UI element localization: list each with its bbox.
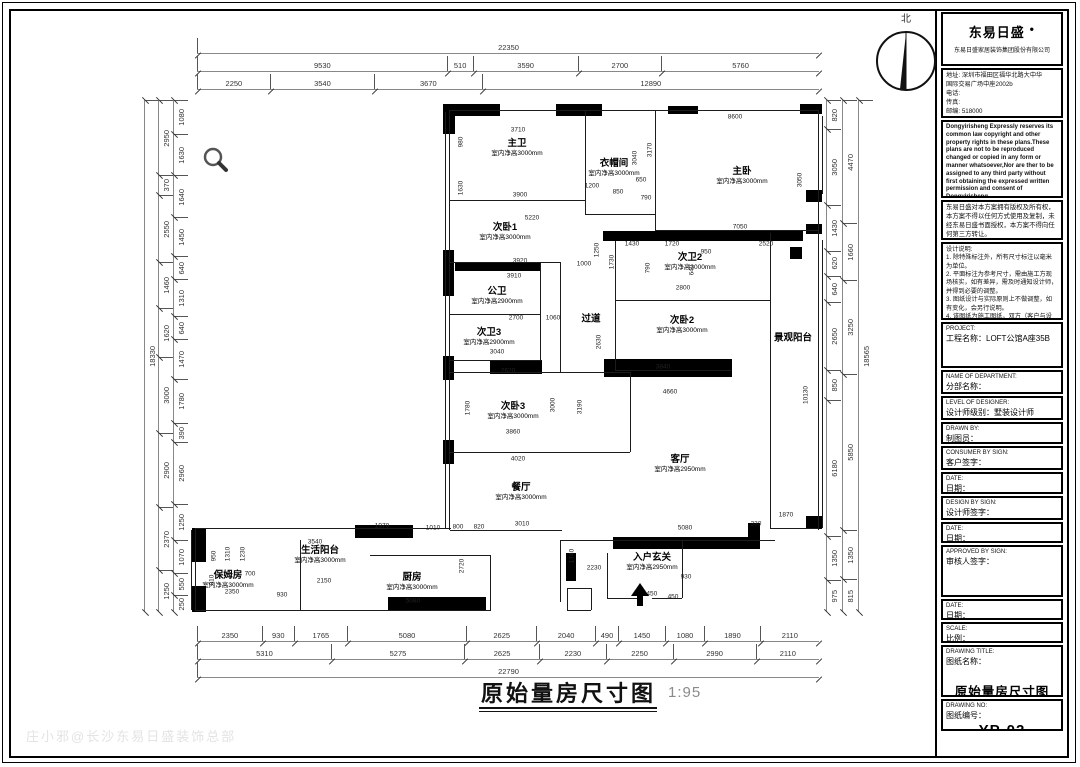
drawing-scale: 1:95 <box>668 684 701 701</box>
dimension-label: 810 <box>209 575 216 586</box>
plan-line <box>540 262 541 361</box>
dimension-segment: 1780 <box>174 379 188 423</box>
dimension-segment: 2110 <box>760 626 819 641</box>
dimension-segment: 1350 <box>843 530 857 580</box>
dimension-chain: 44701660325058501350815 <box>842 100 857 612</box>
row-label-en: DESIGN BY SIGN: <box>946 500 1058 506</box>
drawing-title-in-block: 原始量房尺寸图 <box>946 681 1058 697</box>
dimension-segment: 390 <box>174 423 188 442</box>
dimension-value: 930 <box>272 631 285 640</box>
room-name: 主卧 <box>716 167 767 178</box>
dimension-value: 2110 <box>782 631 798 640</box>
plan-line <box>770 233 771 529</box>
company-name: 东易日盛家居装饰集团股份有限公司 <box>946 45 1058 54</box>
room-name: 公卫 <box>471 287 522 298</box>
plan-line <box>195 528 196 611</box>
dimension-label: 5080 <box>678 525 692 532</box>
dimension-label: 2150 <box>317 578 331 585</box>
dimension-value: 18330 <box>148 346 157 367</box>
dimension-segment: 1450 <box>618 626 665 641</box>
dimension-label: 7050 <box>733 224 747 231</box>
dimension-label: 3540 <box>308 539 322 546</box>
dimension-value: 2625 <box>494 649 511 658</box>
plan-line <box>630 372 631 452</box>
room-label: 次卫3室内净高2900mm <box>463 328 514 346</box>
dimension-label: 980 <box>458 137 465 148</box>
room-name: 生活阳台 <box>294 546 345 557</box>
wall-segment <box>603 231 803 241</box>
dimension-value: 2040 <box>558 631 575 640</box>
dimension-segment: 12890 <box>482 74 819 89</box>
room-name: 次卧1 <box>479 223 530 234</box>
dimension-value: 820 <box>830 109 839 122</box>
row-label-cn: 制图员： <box>946 433 1058 444</box>
magnifier-icon[interactable] <box>201 146 231 181</box>
title-block: 东易日盛 ● 东易日盛家居装饰集团股份有限公司 地址: 深圳市福田区福华北路大中… <box>941 12 1063 731</box>
plan-line <box>770 528 819 529</box>
dimension-label: 1720 <box>665 241 679 248</box>
plan-line <box>450 360 540 361</box>
dimension-value: 2230 <box>565 649 582 658</box>
dimension-segment: 620 <box>827 251 841 276</box>
room-label: 景观阳台 <box>774 334 812 345</box>
dimension-label: 1630 <box>458 181 465 195</box>
room-label: 次卧3室内净高3000mm <box>487 402 538 420</box>
plan-line <box>450 110 818 111</box>
dimension-label: 3910 <box>507 273 521 280</box>
dimension-segment: 2230 <box>539 644 605 659</box>
dimension-label: 5080 <box>406 598 420 605</box>
plan-line <box>450 314 540 315</box>
address-line: 传真: <box>946 99 1058 108</box>
dimension-segment: 1250 <box>174 504 188 540</box>
drawing-title: 原始量房尺寸图 <box>481 676 656 708</box>
dimension-segment: 1080 <box>665 626 704 641</box>
dimension-value: 18565 <box>862 346 871 367</box>
row-label-cn: 图纸名称： <box>946 656 1058 667</box>
address-line: 地址: 深圳市福田区福华北路大中华 <box>946 72 1058 81</box>
dimension-segment: 1890 <box>704 626 760 641</box>
dimension-segment: 1620 <box>159 308 173 357</box>
titleblock-row: DATE:日期： <box>941 599 1063 620</box>
room-ceiling-height: 室内净高2950mm <box>654 466 705 473</box>
dimension-value: 5310 <box>256 649 273 658</box>
dimension-label: 700 <box>245 571 256 578</box>
plan-line <box>450 200 585 201</box>
dimension-value: 370 <box>162 179 171 192</box>
dimension-label: 5220 <box>525 215 539 222</box>
room-ceiling-height: 室内净高3000mm <box>495 494 546 501</box>
dimension-label: 1250 <box>594 243 601 257</box>
dimension-label: 3710 <box>511 127 525 134</box>
plan-line <box>585 214 655 215</box>
dimension-value: 1640 <box>177 189 186 206</box>
dimension-segment: 2650 <box>827 302 841 371</box>
dimension-segment: 3050 <box>827 129 841 205</box>
design-note: 3. 图纸设计与实际原则上不做调整，如有变化，会另行说明。 <box>946 296 1058 313</box>
address-line: http：//www.dyrs.com.cn <box>946 117 1058 118</box>
dimension-label: 1310 <box>225 547 232 561</box>
dimension-value: 12890 <box>640 79 661 88</box>
dimension-segment: 1430 <box>827 205 841 250</box>
dimension-value: 6180 <box>830 460 839 477</box>
title-underline <box>479 707 657 709</box>
dimension-segment: 490 <box>595 626 618 641</box>
dimension-label: 850 <box>613 189 624 196</box>
room-ceiling-height: 室内净高3000mm <box>656 327 707 334</box>
room-label: 主卧室内净高3000mm <box>716 167 767 185</box>
dimension-label: 950 <box>211 551 218 562</box>
dimension-segment: 1640 <box>174 175 188 217</box>
dimension-value: 3000 <box>162 387 171 404</box>
wall-segment <box>806 224 822 234</box>
dimension-label: 1230 <box>240 547 247 561</box>
dimension-segment: 1070 <box>174 540 188 574</box>
dimension-chain: 9530510359027005760 <box>197 56 819 72</box>
floor-plan: 主卫室内净高3000mm衣帽间室内净高3000mm主卧室内净高3000mm次卧1… <box>0 0 940 767</box>
watermark: 庄小邪@长沙东易日盛装饰总部 <box>26 726 236 745</box>
dimension-chain: 18565 <box>858 100 873 612</box>
dimension-label: 2620 <box>501 368 515 375</box>
dimension-value: 1080 <box>177 109 186 126</box>
dimension-segment: 3670 <box>374 74 482 89</box>
dimension-segment: 850 <box>827 370 841 400</box>
row-label-en: DATE: <box>946 526 1058 532</box>
title-underline-2 <box>479 711 657 712</box>
dimension-label: 790 <box>645 263 652 274</box>
dimension-value: 5080 <box>399 631 416 640</box>
room-label: 餐厅室内净高3000mm <box>495 483 546 501</box>
entry-direction-arrow <box>631 583 649 606</box>
row-label-en: DRAWING TITLE: <box>946 649 1058 655</box>
dimension-value: 1620 <box>162 325 171 342</box>
row-label-cn: 设计师级别：墅装设计师 <box>946 407 1058 418</box>
titleblock-row: SCALE:比例： <box>941 622 1063 643</box>
dimension-label: 2700 <box>509 315 523 322</box>
dimension-segment: 370 <box>159 175 173 196</box>
dimension-segment: 2950 <box>159 100 173 175</box>
plan-line <box>567 588 568 610</box>
dimension-label: 1870 <box>779 512 793 519</box>
dimension-label: 640 <box>689 265 696 276</box>
dimension-value: 1070 <box>177 549 186 566</box>
dimension-value: 2110 <box>780 649 796 658</box>
plan-line <box>567 610 591 611</box>
dimension-value: 1460 <box>162 277 171 294</box>
row-label-cn: 图纸编号： <box>946 710 1058 721</box>
dimension-label: 1060 <box>546 315 560 322</box>
room-ceiling-height: 室内净高3000mm <box>294 557 345 564</box>
plan-line <box>822 116 823 194</box>
dimension-label: 4660 <box>663 389 677 396</box>
dimension-chain: 22350 <box>197 38 819 54</box>
room-ceiling-height: 室内净高3000mm <box>479 234 530 241</box>
room-ceiling-height: 室内净高3000mm <box>487 413 538 420</box>
copyright-chinese: 东易日盛对本方案拥有版权及所有权，本方案不得以任何方式使用及复制，未经东易日盛书… <box>941 200 1063 240</box>
dimension-value: 1450 <box>177 229 186 246</box>
dimension-segment: 550 <box>174 573 188 595</box>
dimension-value: 1250 <box>162 583 171 600</box>
plan-line <box>445 112 446 528</box>
plan-line <box>450 530 562 531</box>
dimension-label: 8600 <box>728 114 742 121</box>
room-ceiling-height: 室内净高2950mm <box>626 564 677 571</box>
dimension-label: 1730 <box>609 255 616 269</box>
dimension-label: 1010 <box>426 525 440 532</box>
dimension-value: 1350 <box>846 547 855 564</box>
dimension-chain: 29503702550146016203000290023701250 <box>158 100 173 612</box>
room-name: 次卧2 <box>656 316 707 327</box>
dimension-label: 1970 <box>375 523 389 530</box>
dimension-label: 1000 <box>577 261 591 268</box>
dimension-segment: 1765 <box>294 626 347 641</box>
room-ceiling-height: 室内净高2900mm <box>471 298 522 305</box>
dimension-segment: 22790 <box>197 662 819 677</box>
row-label-cn: 审核人签字： <box>946 556 1058 567</box>
room-ceiling-height: 室内净高3000mm <box>716 178 767 185</box>
room-name: 主卫 <box>491 139 542 150</box>
plan-line <box>195 610 491 611</box>
north-label: 北 <box>873 14 939 25</box>
dimension-value: 2990 <box>706 649 723 658</box>
dimension-label: 3860 <box>506 429 520 436</box>
titleblock-row: CONSUMER BY SIGN:客户签字： <box>941 446 1063 470</box>
dimension-value: 3050 <box>830 159 839 176</box>
dimension-value: 22790 <box>498 667 519 676</box>
room-name: 次卧3 <box>487 402 538 413</box>
room-label: 厨房室内净高3000mm <box>386 573 437 591</box>
plan-line <box>560 540 775 541</box>
dimension-label: 3000 <box>550 398 557 412</box>
dimension-label: 2630 <box>596 335 603 349</box>
row-label-cn: 日期： <box>946 533 1058 543</box>
dimension-value: 3590 <box>517 61 534 70</box>
dimension-segment: 2990 <box>673 644 756 659</box>
dimension-segment: 2900 <box>159 433 173 507</box>
dimension-label: 820 <box>474 524 485 531</box>
dimension-value: 2960 <box>177 465 186 482</box>
plan-line <box>370 555 490 556</box>
dimension-segment: 6180 <box>827 400 841 536</box>
drawing-number: YP-02 <box>946 722 1058 731</box>
dimension-value: 5850 <box>846 444 855 461</box>
dimension-label: 3920 <box>513 258 527 265</box>
row-label-en: LEVEL OF DESIGNER: <box>946 400 1058 406</box>
design-note: 2. 平面标注为参考尺寸，需由施工方现场核实，如有差异，需及时通知设计师，并得到… <box>946 271 1058 296</box>
dimension-segment: 510 <box>447 56 473 71</box>
dimension-segment: 2110 <box>756 644 819 659</box>
arrow-stem <box>637 596 643 606</box>
dimension-segment: 22350 <box>197 38 819 53</box>
dimension-segment: 5760 <box>661 56 819 71</box>
row-label-en: PROJECT: <box>946 326 1058 332</box>
dimension-value: 975 <box>830 590 839 603</box>
titleblock-row: APPROVED BY SIGN:审核人签字： <box>941 545 1063 597</box>
dimension-label: 1200 <box>585 183 599 190</box>
row-label-cn: 分部名称： <box>946 381 1058 392</box>
plan-line <box>615 370 731 371</box>
dimension-label: 930 <box>681 574 692 581</box>
dimension-value: 2650 <box>830 328 839 345</box>
dimension-value: 2250 <box>226 79 243 88</box>
dimension-value: 1470 <box>177 351 186 368</box>
dimension-segment: 640 <box>174 316 188 339</box>
plan-line <box>818 110 819 530</box>
room-name: 餐厅 <box>495 483 546 494</box>
plan-line <box>560 540 561 602</box>
dimension-label: 2520 <box>759 241 773 248</box>
dimension-label: 3050 <box>797 173 804 187</box>
dimension-label: 930 <box>277 592 288 599</box>
dimension-segment: 1660 <box>843 223 857 280</box>
dimension-value: 3540 <box>314 79 331 88</box>
titleblock-row: DATE:日期： <box>941 472 1063 494</box>
row-label-en: DATE: <box>946 603 1058 609</box>
dimension-value: 390 <box>177 427 186 440</box>
dimension-segment: 930 <box>262 626 294 641</box>
dimension-value: 22350 <box>498 43 519 52</box>
dimension-value: 620 <box>830 257 839 270</box>
dimension-value: 3670 <box>420 79 437 88</box>
titleblock-row: PROJECT:工程名称：LOFT公馆A座35B <box>941 322 1063 368</box>
titleblock-row: DRAWN BY:制图员： <box>941 422 1063 444</box>
dimension-segment: 2700 <box>578 56 661 71</box>
room-label: 主卫室内净高3000mm <box>491 139 542 157</box>
design-notes-box: 设计说明: 1. 除特殊标注外，所有尺寸标注以毫米为单位。2. 平面标注为参考尺… <box>941 242 1063 320</box>
dimension-segment: 9530 <box>197 56 447 71</box>
dimension-value: 640 <box>177 322 186 335</box>
dimension-value: 640 <box>830 283 839 296</box>
plan-line <box>195 528 451 529</box>
dimension-segment: 2250 <box>197 74 270 89</box>
room-name: 次卫3 <box>463 328 514 339</box>
dimension-segment: 1470 <box>174 339 188 378</box>
dimension-label: 2720 <box>459 559 466 573</box>
dimension-chain: 2350930176550802625204049014501080189021… <box>197 626 819 642</box>
plan-line <box>822 240 823 528</box>
logo-dot: ● <box>1029 25 1035 34</box>
company-logo: 东易日盛 ● <box>946 22 1058 41</box>
plan-line <box>615 300 770 301</box>
dimension-value: 1430 <box>830 220 839 237</box>
dimension-segment: 1310 <box>174 279 188 316</box>
dimension-chain: 82030501430620640265085061801350975 <box>826 100 841 612</box>
dimension-value: 9530 <box>314 61 331 70</box>
dimension-value: 2900 <box>162 462 171 479</box>
dimension-label: 1430 <box>625 241 639 248</box>
copyright-english: Dongyirisheng Expressly reserves its com… <box>941 120 1063 198</box>
dimension-segment: 1460 <box>159 262 173 308</box>
titleblock-rows: PROJECT:工程名称：LOFT公馆A座35BNAME OF DEPARTME… <box>941 322 1063 731</box>
design-note: 1. 除特殊标注外，所有尺寸标注以毫米为单位。 <box>946 254 1058 271</box>
dimension-value: 490 <box>601 631 614 640</box>
plan-line <box>607 553 608 598</box>
room-label: 生活阳台室内净高3000mm <box>294 546 345 564</box>
row-label-cn: 设计师签字： <box>946 507 1058 518</box>
plan-line <box>449 110 450 530</box>
dimension-segment: 1630 <box>174 134 188 176</box>
plan-line <box>655 110 656 231</box>
dimension-segment: 815 <box>843 579 857 612</box>
plan-line <box>450 262 560 263</box>
dimension-value: 1630 <box>177 147 186 164</box>
dimension-label: 3040 <box>632 151 639 165</box>
room-label: 次卧1室内净高3000mm <box>479 223 530 241</box>
dimension-segment: 820 <box>827 100 841 129</box>
dimension-label: 3840 <box>656 364 670 371</box>
dimension-value: 2700 <box>612 61 629 70</box>
dimension-value: 1890 <box>724 631 741 640</box>
design-note: 4. 该图纸为施工图纸，双方（客户与设计师）签字认可后，方可指导施工。 <box>946 313 1058 320</box>
dimension-label: 2800 <box>676 285 690 292</box>
dimension-value: 5275 <box>390 649 407 658</box>
dimension-segment: 5275 <box>331 644 464 659</box>
dimension-value: 1780 <box>177 393 186 410</box>
dimension-value: 850 <box>830 379 839 392</box>
plan-line <box>567 588 591 589</box>
room-name: 景观阳台 <box>774 334 812 345</box>
dimension-value: 1660 <box>846 244 855 261</box>
dimension-label: 4020 <box>511 456 525 463</box>
address-line: 国际交易广场中座2002b <box>946 81 1058 90</box>
dimension-label: 10130 <box>803 386 810 404</box>
plan-line <box>591 588 592 610</box>
room-label: 过道 <box>581 315 600 326</box>
row-label-cn: 日期： <box>946 610 1058 620</box>
dimension-chain: 5310527526252230225029902110 <box>197 644 819 660</box>
dimension-value: 250 <box>177 598 186 611</box>
dimension-value: 1450 <box>634 631 651 640</box>
row-label-cn: 工程名称：LOFT公馆A座35B <box>946 333 1058 344</box>
room-name: 入户玄关 <box>626 553 677 564</box>
dimension-segment: 18565 <box>859 100 873 612</box>
dimension-chain: 22503540367012890 <box>197 74 819 90</box>
titleblock-row: DESIGN BY SIGN:设计师签字： <box>941 496 1063 520</box>
dimension-value: 550 <box>177 578 186 591</box>
dimension-label: 1780 <box>465 401 472 415</box>
dimension-chain: 1080163016401450640131064014701780390296… <box>173 100 188 612</box>
dimension-segment: 3250 <box>843 280 857 374</box>
dimension-segment: 640 <box>827 276 841 302</box>
wall-segment <box>388 597 486 610</box>
row-label-cn: 比例： <box>946 633 1058 643</box>
dimension-label: 3010 <box>515 521 529 528</box>
dimension-segment: 2350 <box>197 626 262 641</box>
north-arrow-icon <box>873 25 939 93</box>
design-notes-list: 1. 除特殊标注外，所有尺寸标注以毫米为单位。2. 平面标注为参考尺寸，需由施工… <box>946 254 1058 320</box>
dimension-label: 2230 <box>587 565 601 572</box>
dimension-label: 800 <box>453 524 464 531</box>
dimension-value: 1310 <box>177 290 186 307</box>
dimension-segment: 640 <box>174 256 188 279</box>
row-label-cn: 日期： <box>946 483 1058 494</box>
dimension-label: 790 <box>641 195 652 202</box>
dimension-segment: 2625 <box>466 626 536 641</box>
dimension-value: 1250 <box>177 514 186 531</box>
arrow-head <box>631 583 649 596</box>
room-ceiling-height: 室内净高3000mm <box>588 170 639 177</box>
titleblock-row: NAME OF DEPARTMENT:分部名称： <box>941 370 1063 394</box>
dimension-value: 2350 <box>222 631 239 640</box>
company-logo-box: 东易日盛 ● 东易日盛家居装饰集团股份有限公司 <box>941 12 1063 66</box>
room-ceiling-height: 室内净高3000mm <box>491 150 542 157</box>
dimension-segment: 2960 <box>174 442 188 503</box>
room-ceiling-height: 室内净高2900mm <box>463 339 514 346</box>
dimension-segment: 1080 <box>174 100 188 134</box>
wall-segment <box>455 262 540 271</box>
dimension-value: 640 <box>177 262 186 275</box>
row-label-en: APPROVED BY SIGN: <box>946 549 1058 555</box>
